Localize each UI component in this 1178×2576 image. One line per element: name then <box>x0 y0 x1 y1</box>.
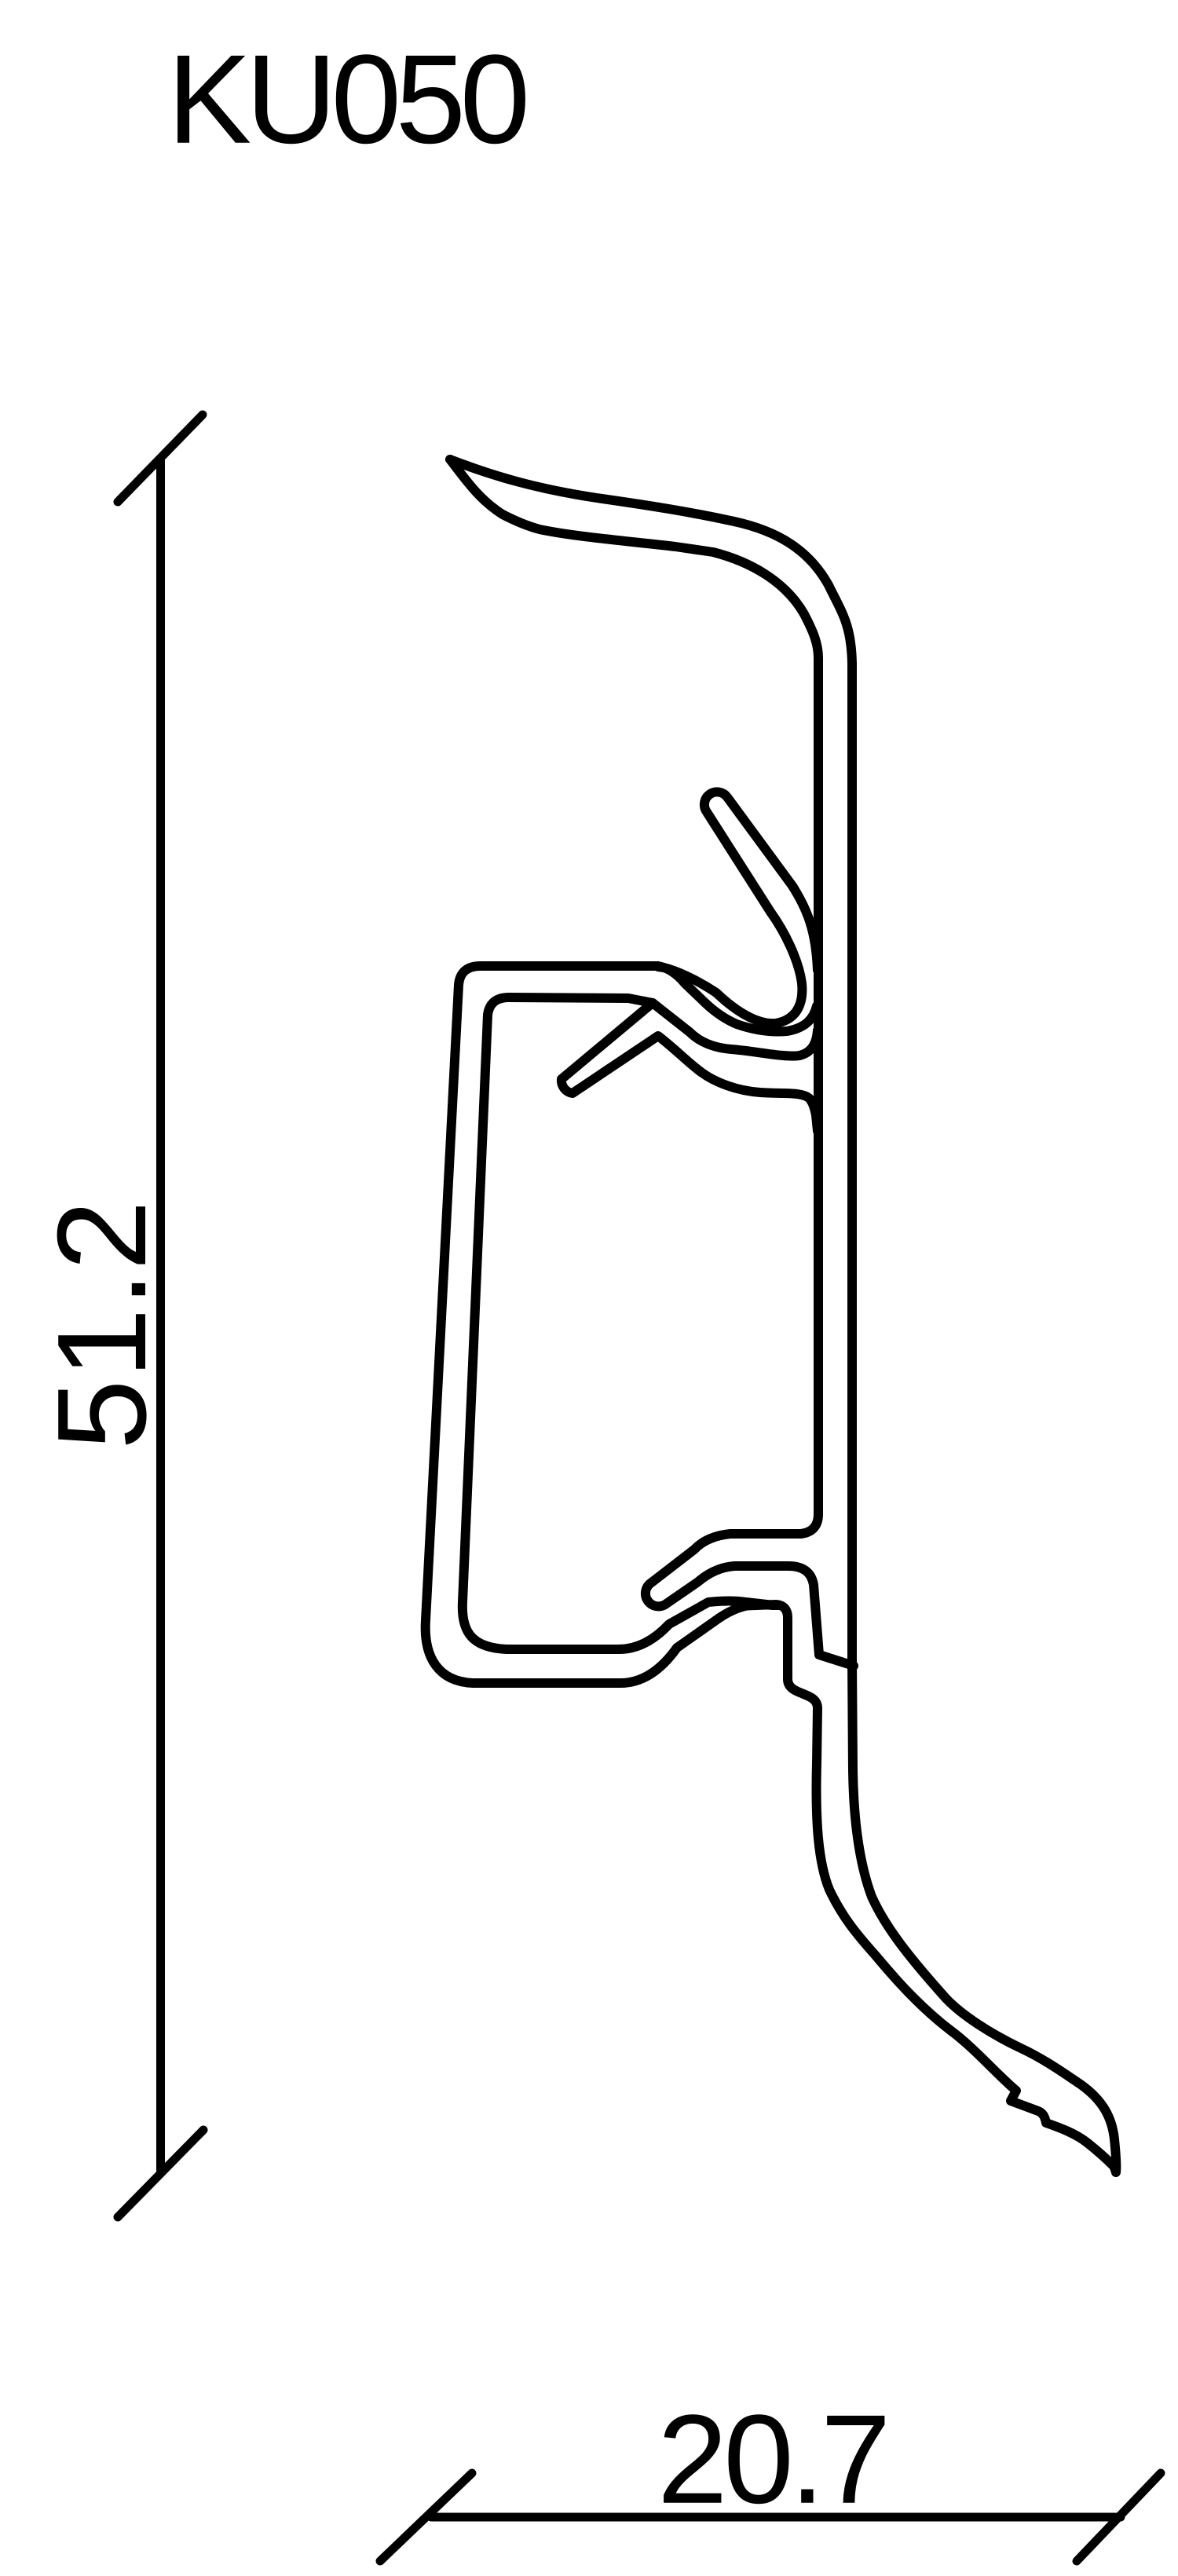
svg-text:KU050: KU050 <box>167 29 526 170</box>
svg-text:20.7: 20.7 <box>657 2389 887 2530</box>
svg-text:51.2: 51.2 <box>31 1199 173 1450</box>
